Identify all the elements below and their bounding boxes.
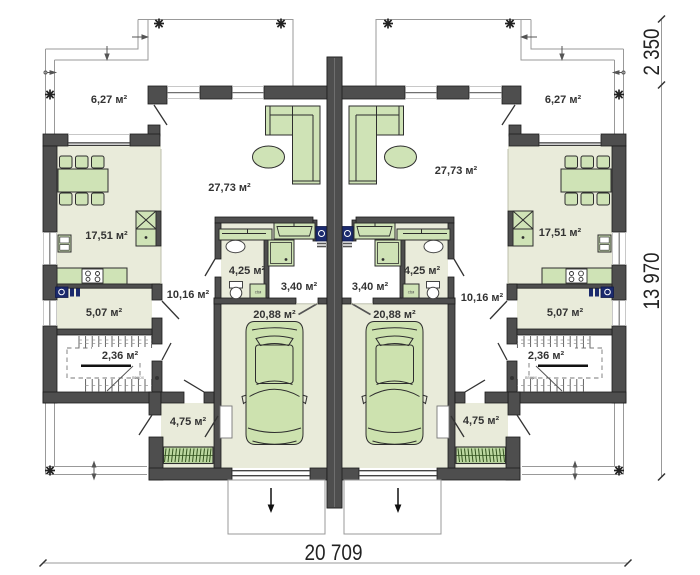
svg-text:сtм: сtм	[255, 290, 262, 295]
svg-text:17,51 м²: 17,51 м²	[539, 227, 582, 239]
svg-text:6,27 м²: 6,27 м²	[91, 94, 128, 106]
svg-text:2,36 м²: 2,36 м²	[528, 350, 565, 362]
svg-text:4,75 м²: 4,75 м²	[463, 415, 500, 427]
svg-text:10,16 м²: 10,16 м²	[461, 292, 504, 304]
svg-text:20 709: 20 709	[305, 540, 363, 565]
svg-text:вверх: вверх	[132, 375, 145, 380]
svg-text:вверх: вверх	[525, 375, 538, 380]
svg-text:4,25 м²: 4,25 м²	[404, 265, 441, 277]
svg-text:6,27 м²: 6,27 м²	[545, 94, 582, 106]
svg-text:5,07 м²: 5,07 м²	[86, 307, 123, 319]
svg-text:4,25 м²: 4,25 м²	[229, 265, 266, 277]
svg-text:20,88 м²: 20,88 м²	[253, 309, 296, 321]
svg-text:3,40 м²: 3,40 м²	[352, 281, 389, 293]
svg-text:27,73 м²: 27,73 м²	[208, 182, 251, 194]
svg-text:сtм: сtм	[408, 290, 415, 295]
svg-text:13 970: 13 970	[639, 253, 664, 310]
svg-text:3,40 м²: 3,40 м²	[281, 281, 318, 293]
svg-text:10,16 м²: 10,16 м²	[167, 289, 210, 301]
svg-text:2,36 м²: 2,36 м²	[102, 350, 139, 362]
svg-text:17,51 м²: 17,51 м²	[85, 230, 128, 242]
svg-text:20,88 м²: 20,88 м²	[373, 309, 416, 321]
svg-text:5,07 м²: 5,07 м²	[547, 307, 584, 319]
svg-text:4,75 м²: 4,75 м²	[170, 416, 207, 428]
svg-text:27,73 м²: 27,73 м²	[435, 165, 478, 177]
svg-text:2 350: 2 350	[639, 29, 664, 76]
